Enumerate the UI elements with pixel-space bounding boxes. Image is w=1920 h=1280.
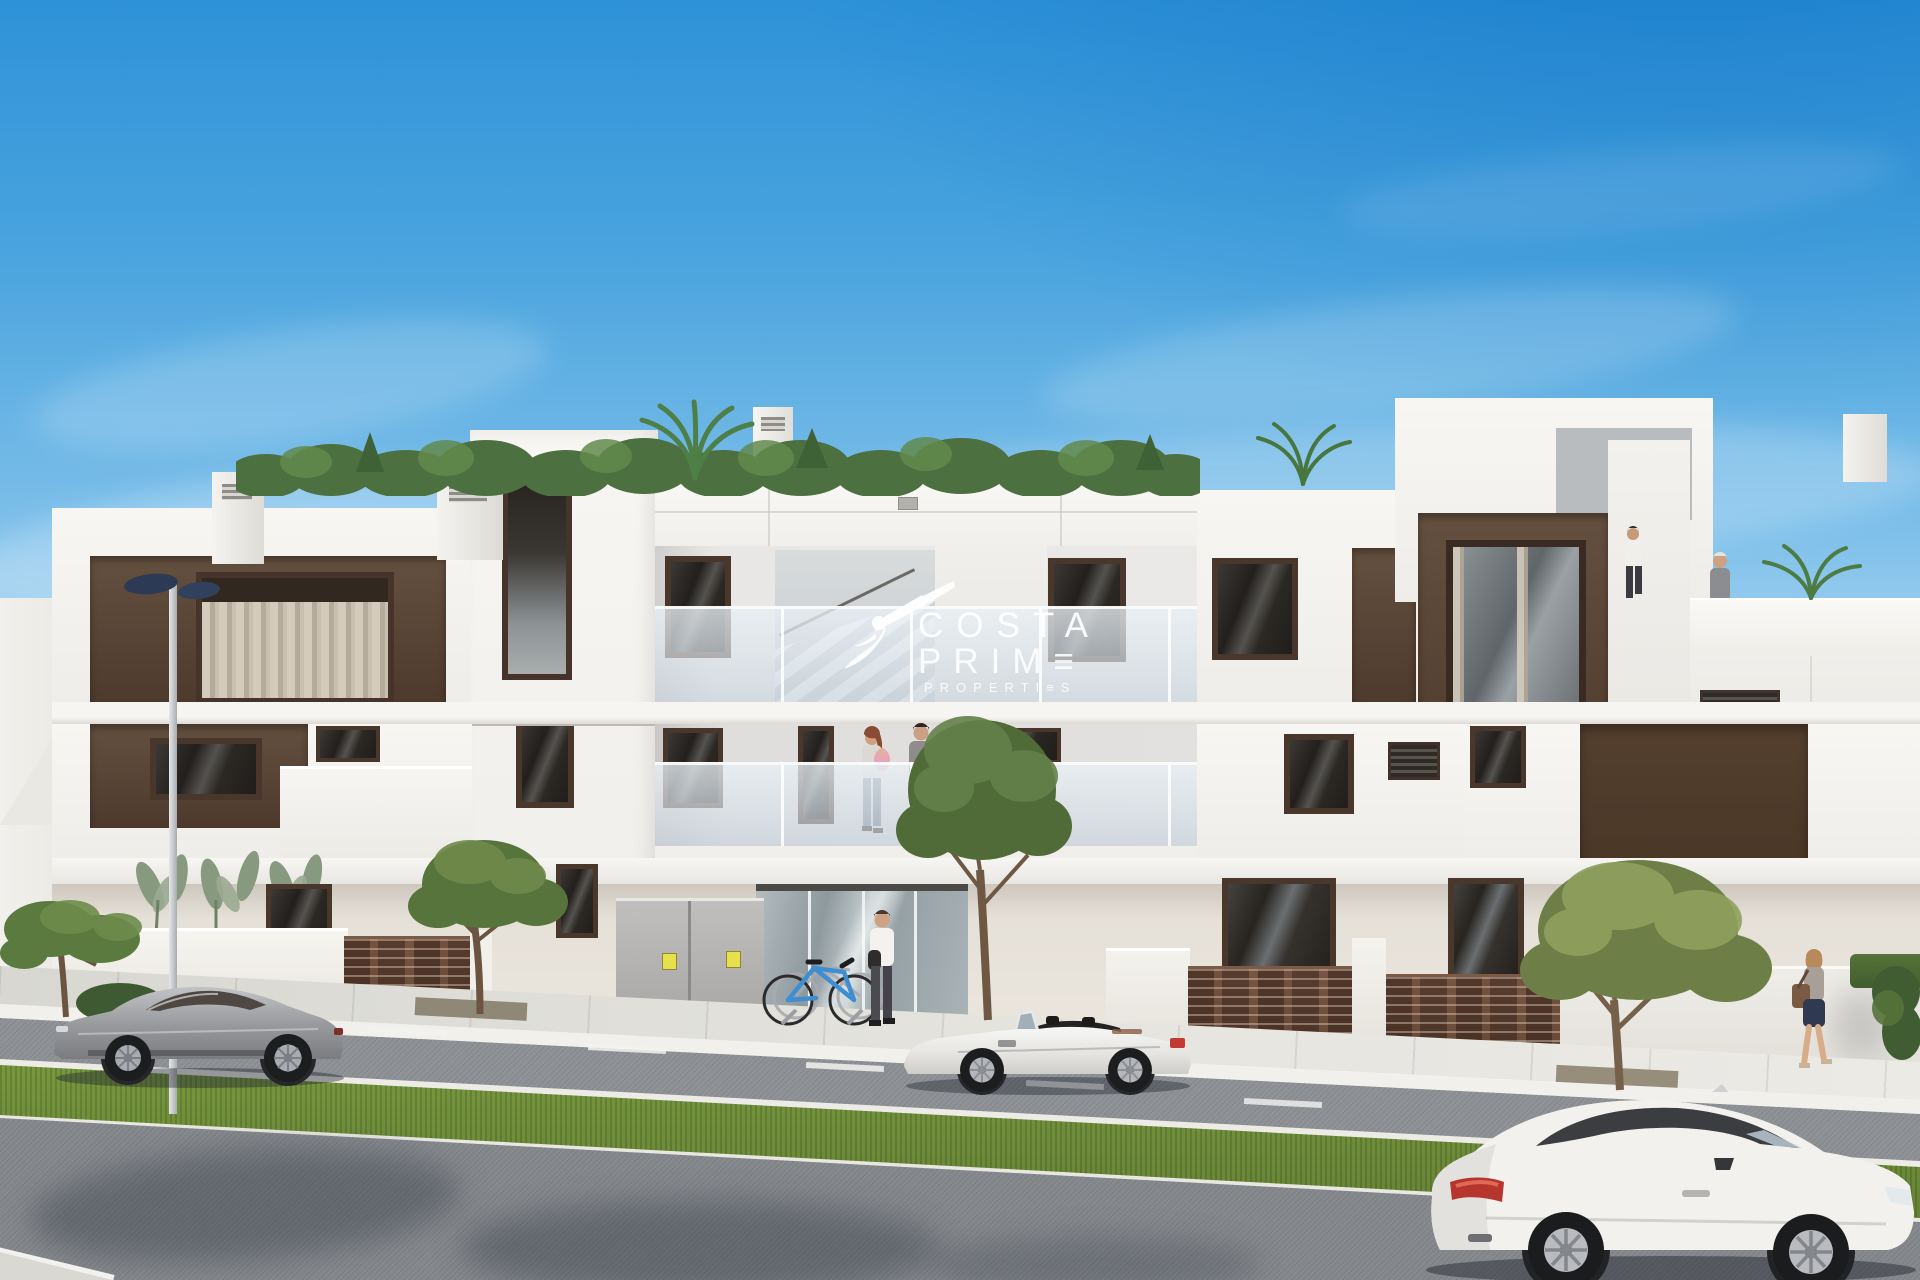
architectural-render: COSTA PRIM≡ PROPERTI≡S [0, 0, 1920, 1280]
white-coupe-foreground [1416, 1078, 1920, 1280]
cabinet-door-split [688, 901, 691, 1016]
window-vertical-blinds [196, 572, 394, 704]
wall-vent [898, 497, 918, 510]
chimney [1843, 414, 1887, 482]
bush [1862, 962, 1920, 1066]
palm-plant [1756, 538, 1866, 600]
warning-sticker [662, 953, 677, 970]
palm-plant [630, 398, 760, 482]
watermark: COSTA PRIM≡ PROPERTI≡S [824, 580, 1124, 704]
watermark-line-2: PRIM≡ [918, 642, 1086, 682]
fence-pillar [1352, 938, 1386, 1046]
roof-terrace-parapet [1690, 598, 1920, 658]
tree [398, 818, 578, 1018]
man-on-roof-terrace [1616, 526, 1652, 606]
first-floor-window [1470, 726, 1526, 788]
woman-walking-sidewalk [1784, 948, 1844, 1084]
stairwell-mid-window [516, 716, 574, 808]
first-floor-window [150, 738, 262, 800]
woman-on-roof-terrace [1700, 552, 1740, 604]
right-wing-window [1446, 540, 1586, 722]
white-convertible [898, 980, 1196, 1100]
first-floor-window [316, 726, 380, 762]
first-floor-window [1284, 734, 1354, 814]
gray-sports-coupe [48, 964, 352, 1092]
stairwell-tall-window [502, 466, 572, 680]
ac-vent [1388, 742, 1440, 780]
tree [888, 680, 1078, 1025]
palm-plant [1248, 418, 1358, 488]
watermark-line-3: PROPERTI≡S [924, 680, 1076, 695]
upper-window [1212, 558, 1298, 660]
fascia-seam [655, 511, 1197, 513]
watermark-line-1: COSTA [918, 606, 1101, 646]
warning-sticker [726, 951, 741, 968]
tree [1508, 840, 1808, 1095]
